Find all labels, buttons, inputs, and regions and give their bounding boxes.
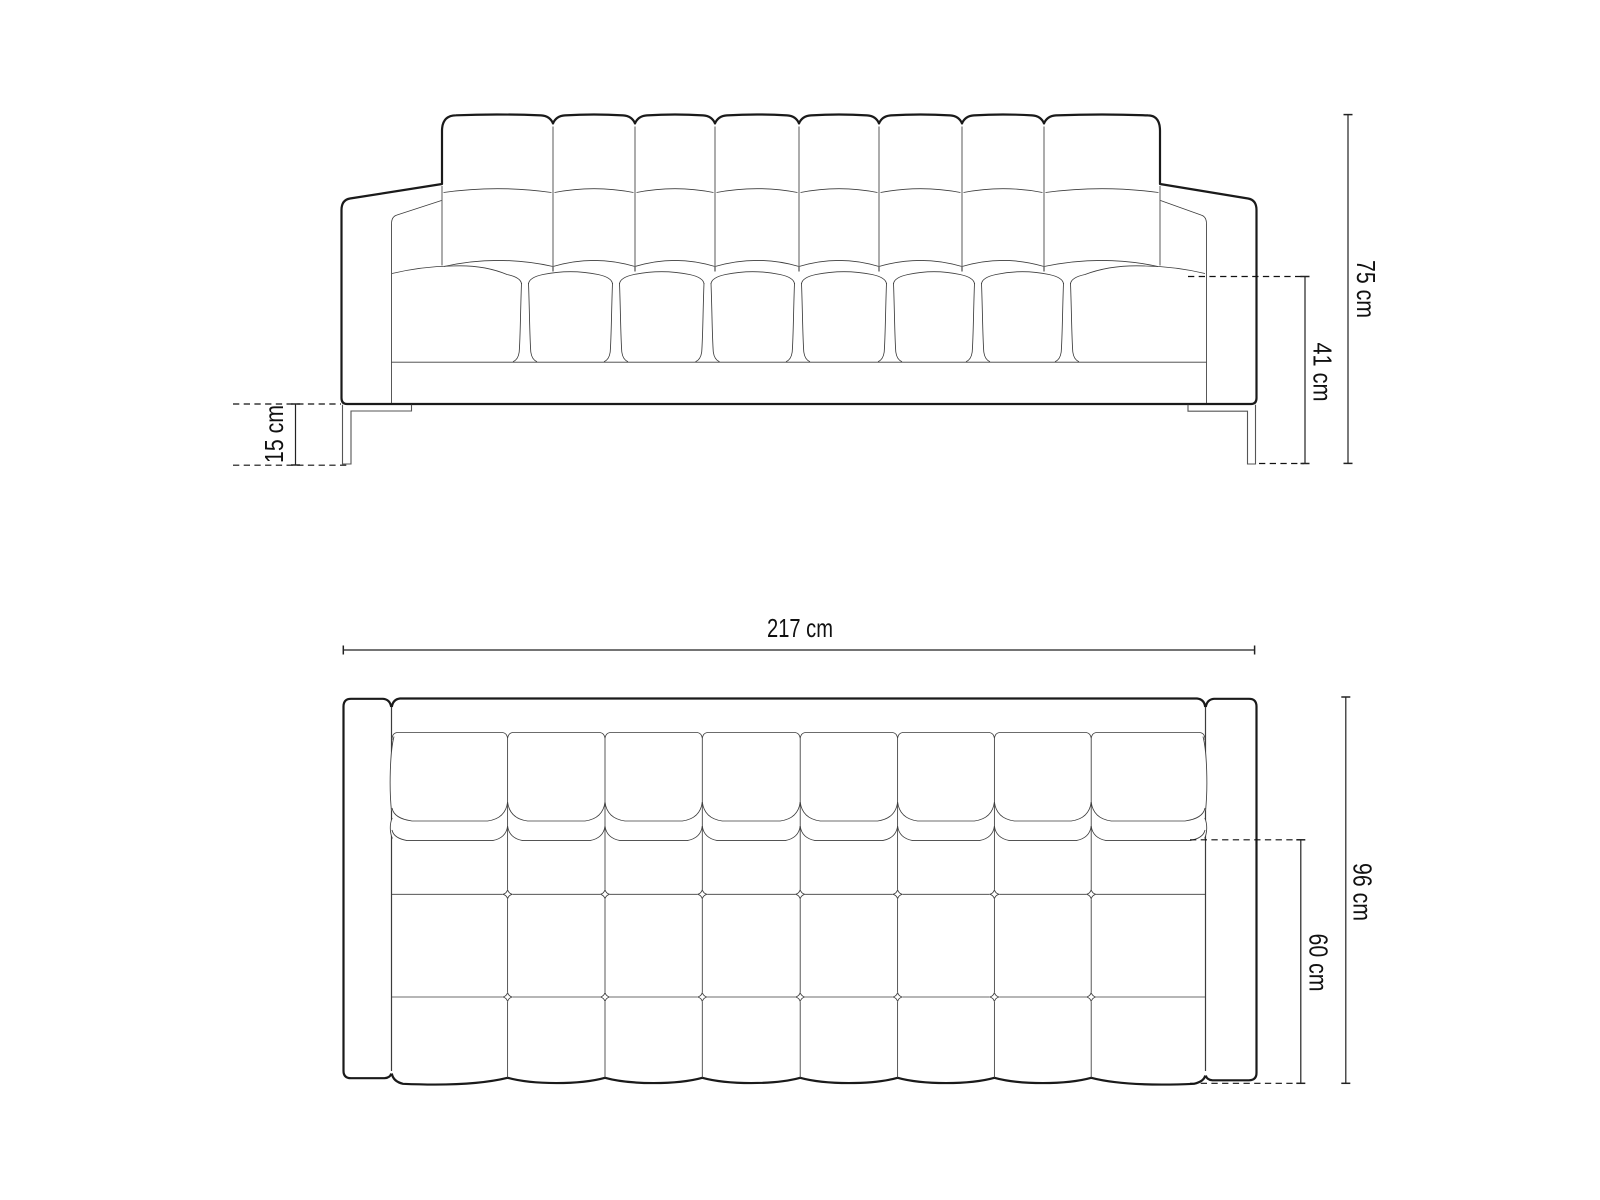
svg-text:15 cm: 15 cm	[259, 405, 289, 463]
svg-text:75 cm: 75 cm	[1351, 260, 1381, 318]
svg-text:96 cm: 96 cm	[1348, 863, 1378, 921]
svg-text:41 cm: 41 cm	[1308, 343, 1338, 402]
svg-text:217 cm: 217 cm	[767, 613, 833, 643]
svg-text:60 cm: 60 cm	[1304, 934, 1334, 992]
